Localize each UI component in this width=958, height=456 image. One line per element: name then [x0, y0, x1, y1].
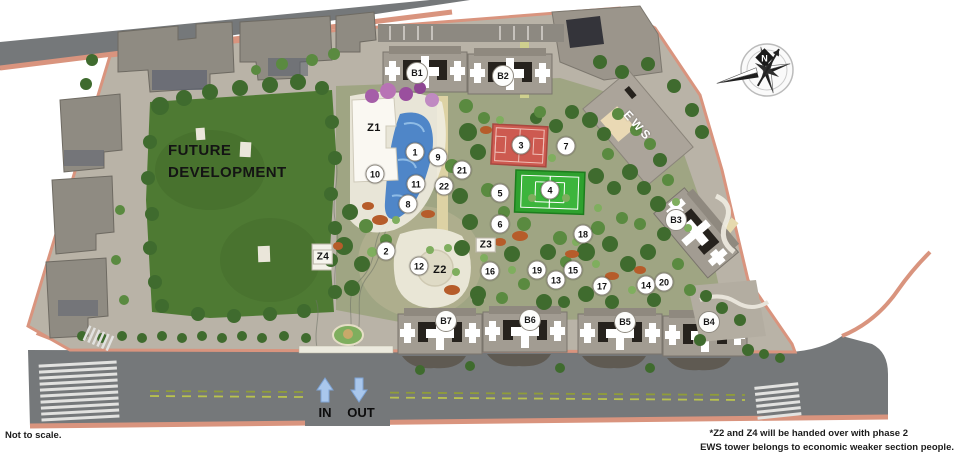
site-plan-graphic: IN OUT — [0, 0, 958, 456]
basketball-court — [491, 124, 548, 167]
future-development-lawn — [146, 90, 336, 318]
footnote-phase2: *Z2 and Z4 will be handed over with phas… — [674, 427, 908, 441]
gate-out-label: OUT — [347, 405, 375, 420]
gate-in-label: IN — [319, 405, 332, 420]
compass-north-label: N — [761, 54, 768, 64]
compass-rose: N — [711, 41, 797, 107]
footnotes: *Z2 and Z4 will be handed over with phas… — [674, 427, 954, 456]
site-plan: IN OUT — [0, 0, 958, 456]
tennis-court — [515, 170, 585, 214]
footnote-ews: EWS tower belongs to economic weaker sec… — [674, 441, 954, 455]
plaza-z2 — [394, 228, 471, 308]
not-to-scale-note: Not to scale. — [5, 430, 62, 441]
